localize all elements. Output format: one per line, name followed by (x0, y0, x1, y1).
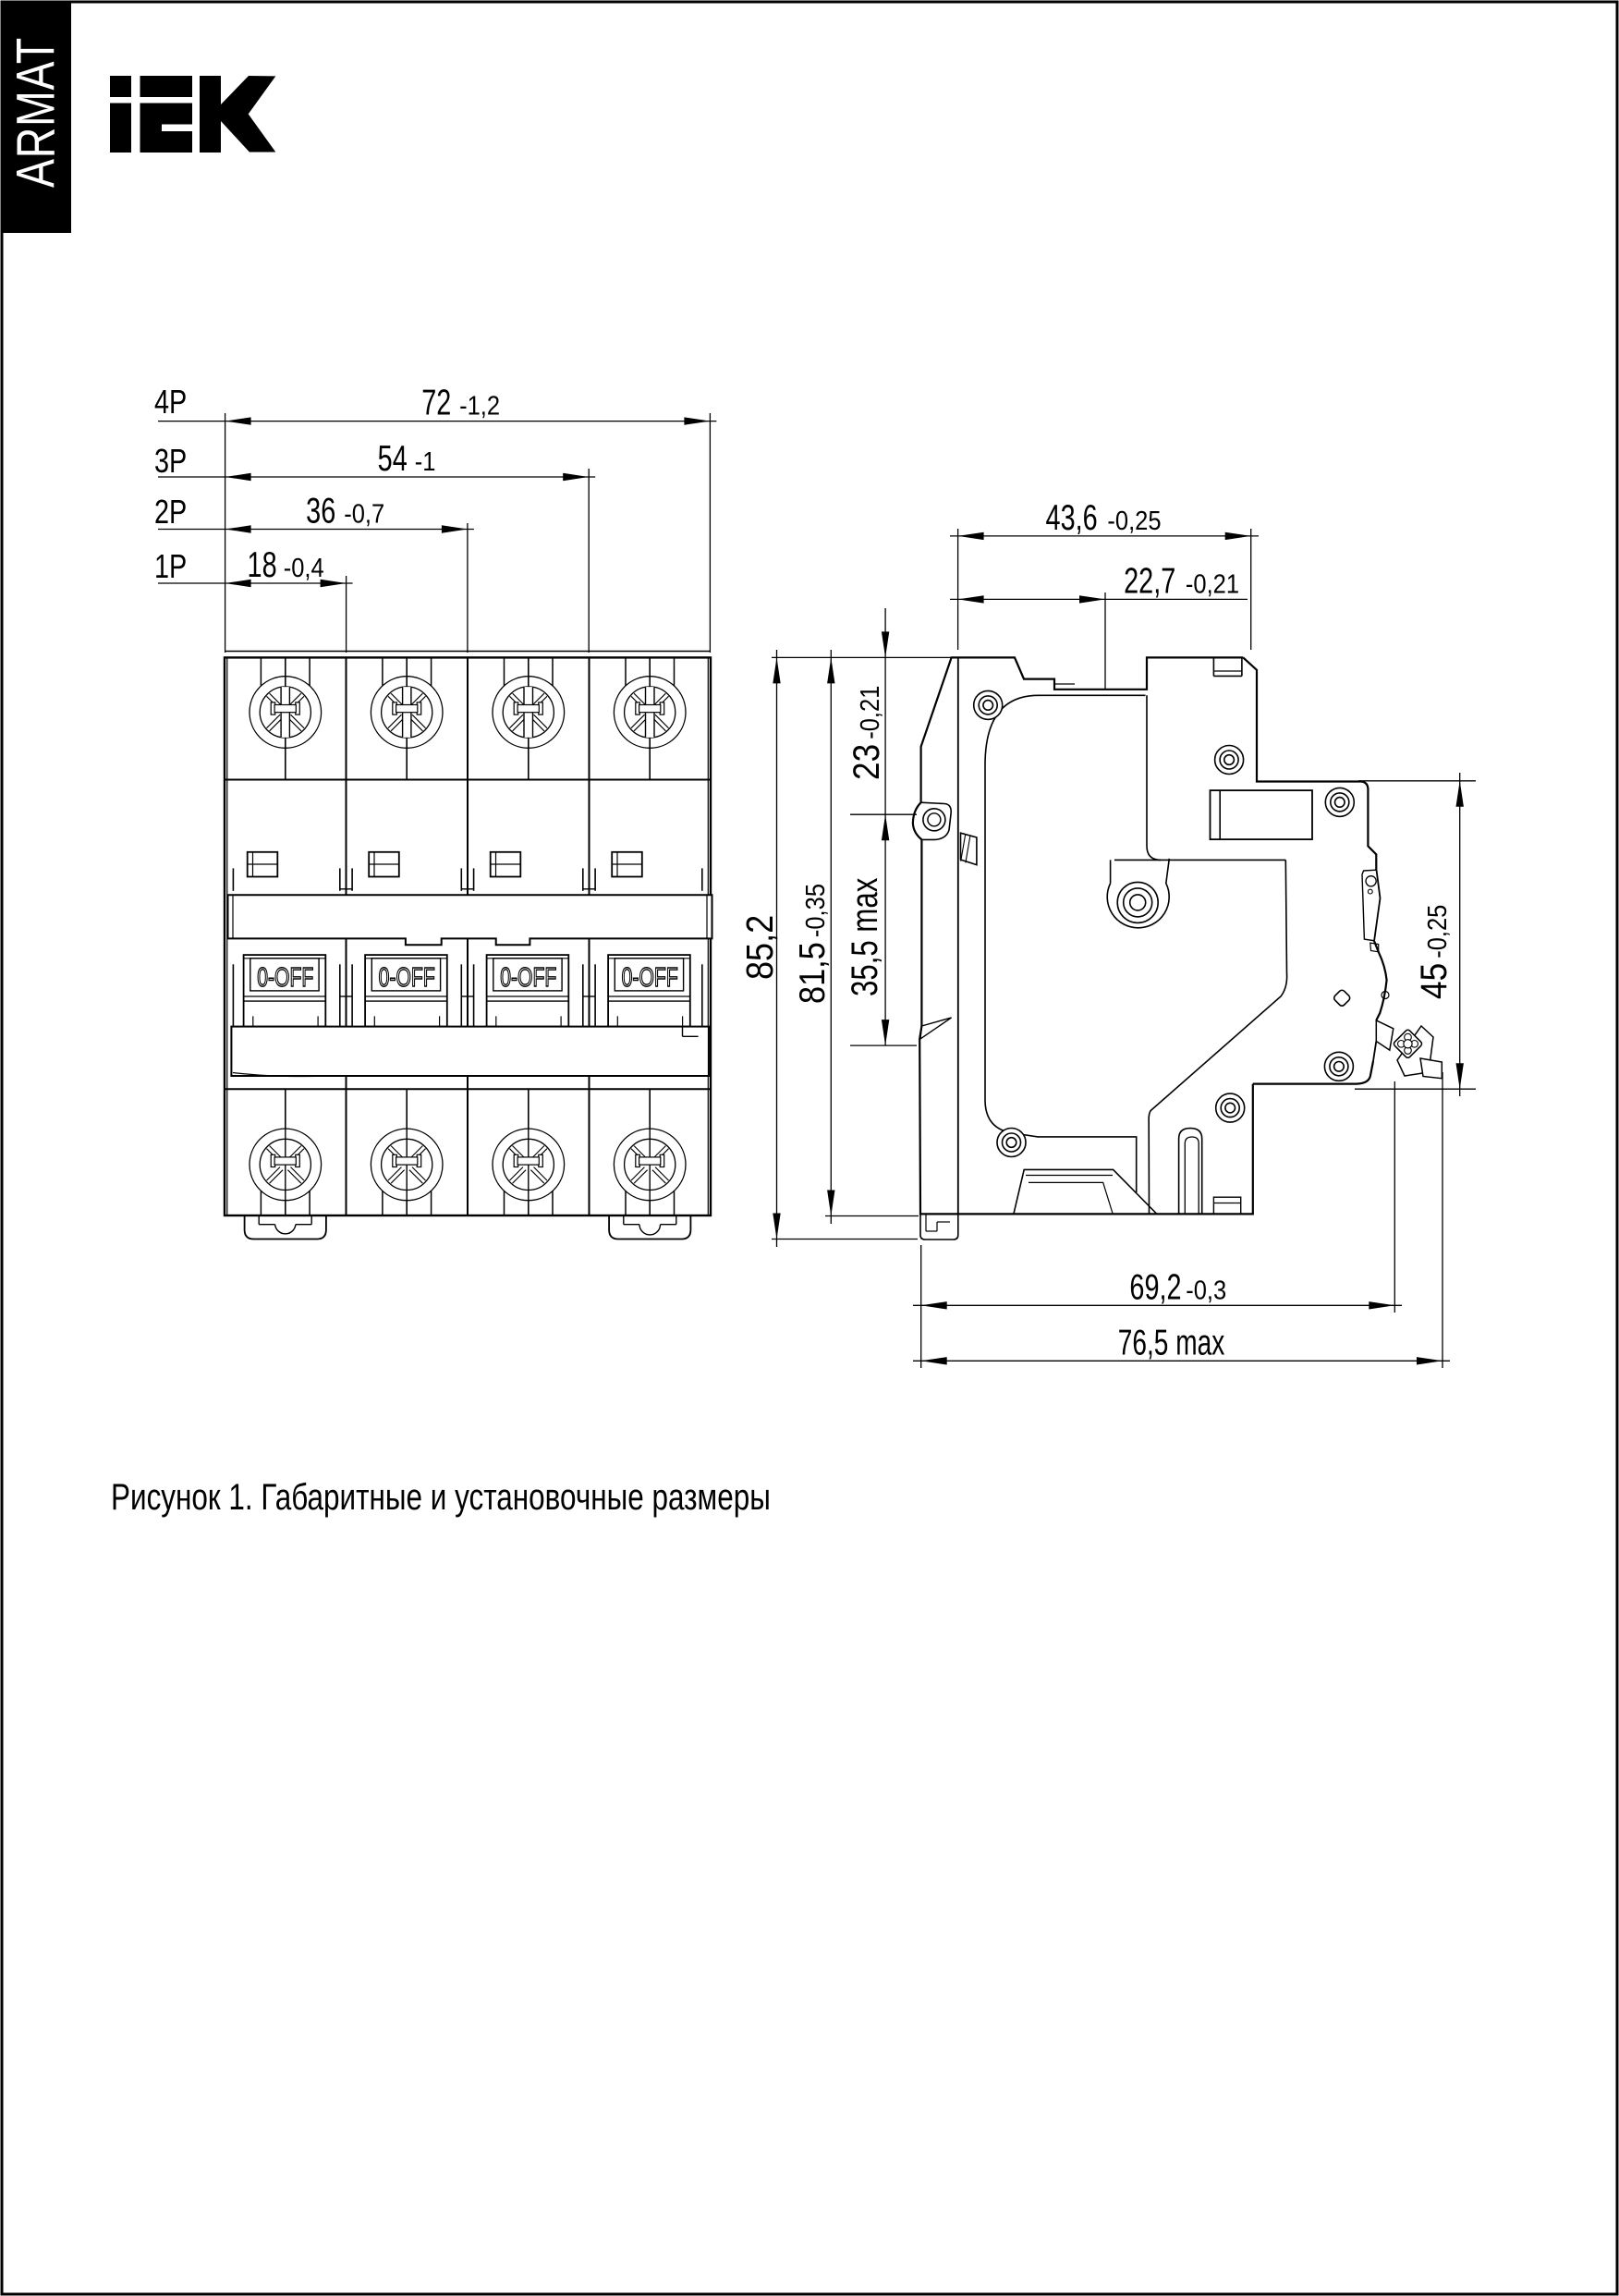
svg-text:Рисунок 1. Габаритные и устано: Рисунок 1. Габаритные и установочные раз… (111, 1475, 771, 1518)
svg-text:-0,4: -0,4 (284, 552, 324, 582)
svg-text:-1: -1 (415, 446, 436, 476)
svg-text:0-OFF: 0-OFF (500, 963, 556, 993)
svg-text:-0,7: -0,7 (344, 498, 384, 529)
svg-text:-0,3: -0,3 (1186, 1275, 1226, 1305)
svg-text:72: 72 (421, 383, 451, 422)
svg-text:54: 54 (378, 439, 408, 479)
svg-text:0-OFF: 0-OFF (379, 963, 435, 993)
svg-text:2P: 2P (154, 493, 187, 531)
svg-text:69,2: 69,2 (1129, 1267, 1181, 1307)
svg-text:22,7: 22,7 (1124, 561, 1175, 601)
svg-text:4P: 4P (154, 383, 187, 421)
svg-text:35,5 max: 35,5 max (844, 878, 885, 996)
svg-text:0-OFF: 0-OFF (257, 963, 313, 993)
svg-text:-0,25: -0,25 (1107, 505, 1161, 535)
svg-text:0-OFF: 0-OFF (622, 963, 678, 993)
svg-text:36: 36 (306, 491, 335, 531)
svg-text:ARMAT: ARMAT (6, 37, 67, 188)
svg-text:1P: 1P (154, 547, 187, 585)
svg-text:43,6: 43,6 (1046, 498, 1098, 538)
svg-text:18: 18 (248, 545, 277, 585)
svg-text:3P: 3P (154, 442, 187, 480)
svg-text:76,5 max: 76,5 max (1118, 1323, 1224, 1363)
svg-text:-1,2: -1,2 (459, 390, 500, 421)
svg-text:85,2: 85,2 (739, 915, 782, 980)
svg-text:-0,21: -0,21 (1186, 568, 1239, 599)
